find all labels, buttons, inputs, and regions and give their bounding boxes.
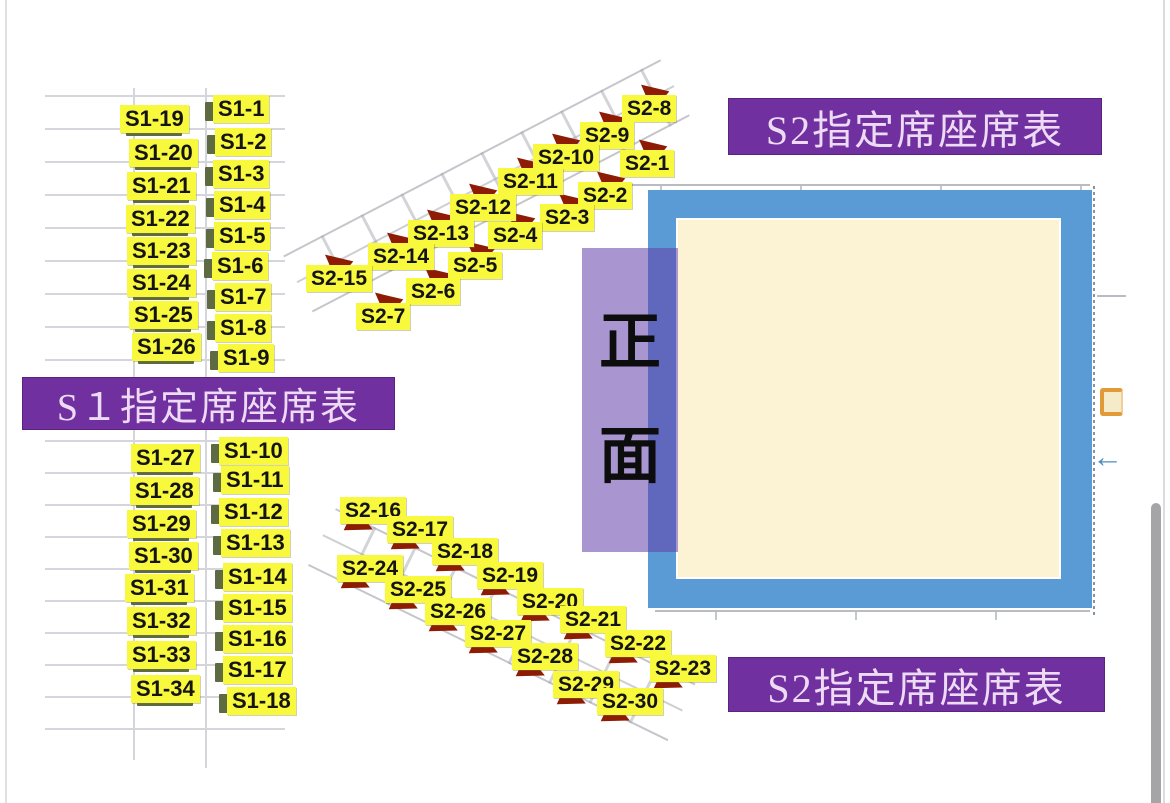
seat-label: S1-4 [214, 191, 270, 219]
s1-section-banner: S１指定席座席表 [22, 377, 395, 430]
seat-label: S1-13 [221, 529, 290, 557]
seat-label: S1-2 [215, 128, 271, 156]
seat-label: S2-12 [450, 194, 516, 221]
seat-label: S2-5 [448, 252, 502, 279]
stage-area [648, 190, 1092, 608]
floorplan-line [45, 728, 285, 730]
seat-label: S1-12 [219, 498, 288, 526]
seat-label: S1-9 [218, 344, 274, 372]
floorplan-dashed-boundary [1093, 186, 1095, 616]
seat-label: S2-30 [597, 688, 663, 715]
seat-label: S1-31 [125, 574, 194, 602]
vertical-scrollbar[interactable] [1151, 503, 1161, 803]
seat-label: S2-15 [306, 265, 372, 292]
seat-label: S1-21 [127, 172, 196, 200]
seat-label: S1-11 [221, 466, 289, 494]
seat-label: S1-23 [127, 237, 196, 265]
front-label-char: 面 [599, 426, 661, 488]
viewer-right-edge [1163, 0, 1165, 803]
image-viewer: 正 面 ← S１指定席座席表 S2指定席座席表 S2指定席座席表 S1-19S1… [0, 0, 1170, 803]
viewer-left-edge [5, 0, 7, 803]
seat-label: S1-28 [130, 477, 199, 505]
seat-label: S1-17 [223, 656, 292, 684]
seat-label: S2-1 [620, 150, 674, 177]
seat-label: S1-15 [223, 594, 292, 622]
seat-label: S1-14 [223, 563, 292, 591]
seat-label: S2-11 [498, 168, 563, 195]
seat-label: S1-19 [120, 105, 189, 133]
s2-section-banner-top: S2指定席座席表 [728, 98, 1102, 155]
seat-label: S2-7 [356, 303, 410, 330]
seat-label: S2-22 [605, 630, 671, 657]
seat-label: S1-3 [213, 160, 269, 188]
seat-label: S1-32 [127, 607, 196, 635]
seat-label: S2-28 [512, 643, 578, 670]
seat-label: S1-7 [215, 283, 271, 311]
seat-label: S1-8 [215, 314, 271, 342]
seat-label: S1-10 [219, 437, 288, 465]
floorplan-tick-line [1097, 295, 1126, 297]
seat-label: S2-23 [650, 655, 716, 682]
seat-label: S1-6 [212, 252, 268, 280]
seat-label: S1-16 [223, 625, 292, 653]
front-label-char: 正 [599, 312, 661, 374]
floorplan-wall-line-bottom [655, 610, 1090, 620]
door-marker-icon [1100, 388, 1123, 416]
front-direction-overlay: 正 面 [582, 248, 678, 552]
seat-label: S2-6 [406, 278, 460, 305]
seat-label: S1-22 [126, 205, 195, 233]
seat-label: S1-27 [131, 444, 200, 472]
seat-label: S1-30 [129, 542, 198, 570]
s2-section-banner-bottom: S2指定席座席表 [728, 657, 1105, 712]
seat-label: S1-26 [132, 333, 201, 361]
stage-floor [676, 218, 1061, 579]
seat-label: S1-25 [129, 301, 198, 329]
entrance-arrow-icon: ← [1092, 441, 1123, 472]
seat-label: S1-20 [129, 139, 198, 167]
seat-label: S1-24 [127, 269, 196, 297]
seat-label: S1-18 [227, 687, 296, 715]
seat-label: S1-34 [131, 675, 200, 703]
seat-label: S2-3 [540, 204, 594, 231]
seat-label: S2-4 [488, 222, 542, 249]
seat-label: S2-19 [477, 562, 543, 589]
seat-label: S1-33 [127, 641, 196, 669]
seat-label: S2-14 [368, 243, 434, 270]
seating-plan: 正 面 ← S１指定席座席表 S2指定席座席表 S2指定席座席表 S1-19S1… [0, 0, 1170, 803]
seat-label: S1-29 [127, 510, 196, 538]
seat-label: S1-1 [213, 95, 269, 123]
seat-label: S1-5 [214, 222, 270, 250]
seat-label: S2-8 [622, 95, 676, 122]
